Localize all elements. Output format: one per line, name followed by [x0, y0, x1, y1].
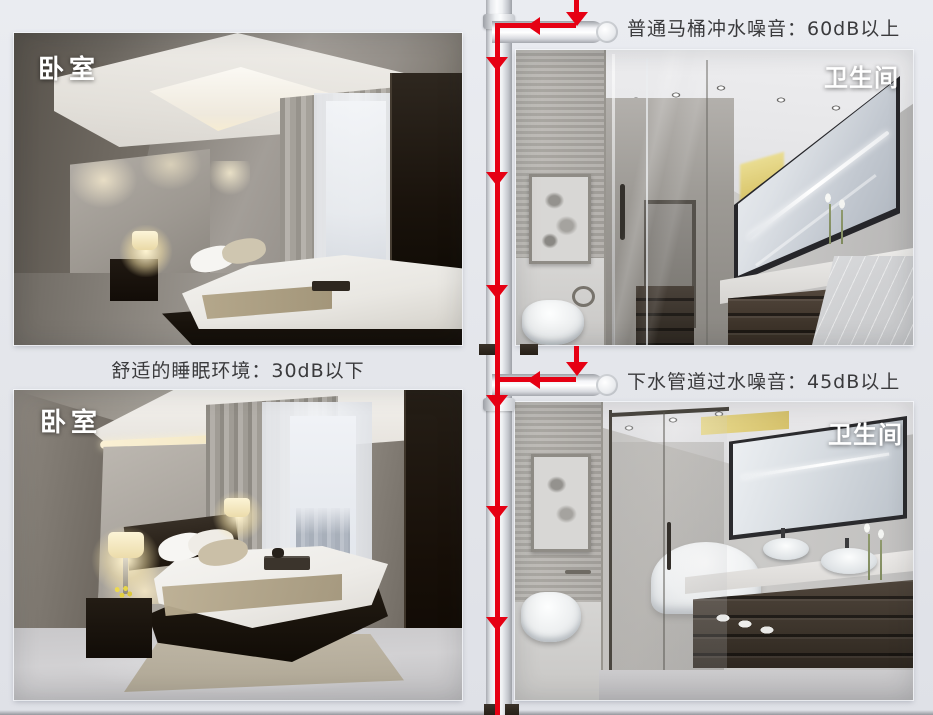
towel-bar: [565, 570, 591, 574]
bed-tray: [312, 281, 350, 291]
caption-sleep-environment: 舒适的睡眠环境：30dB以下: [14, 356, 462, 383]
toilet: [522, 300, 584, 345]
flow-arrow-down-icon: [486, 285, 508, 299]
faucet: [845, 538, 849, 548]
flow-arrow-down-icon: [486, 172, 508, 186]
bathroom-photo-top: 卫生间: [516, 50, 913, 345]
pipe-cap: [596, 374, 618, 396]
flow-line: [574, 346, 579, 363]
glass-reflection: [614, 50, 710, 345]
flow-arrow-down-icon: [566, 12, 588, 26]
bottom-edge-shadow: [0, 710, 933, 715]
flow-arrow-down-icon: [486, 506, 508, 520]
bathroom-photo-bottom: 卫生间: [515, 402, 913, 700]
bedroom-label: 卧室: [40, 402, 102, 439]
floor-slab: [479, 344, 496, 355]
wall-artwork: [531, 454, 591, 552]
pillow: [220, 235, 267, 266]
table-lamp: [108, 532, 144, 558]
calla-lily-flowers: [859, 522, 889, 582]
wall-lamp-glow: [210, 161, 250, 201]
flow-arrow-down-icon: [486, 395, 508, 409]
floor-slab: [505, 704, 519, 715]
noise-comparison-diagram: 卧室 卫生间: [0, 0, 933, 715]
table-lamp: [132, 231, 158, 250]
teapot: [272, 548, 284, 558]
flow-arrow-down-icon: [566, 362, 588, 376]
caption-drain-pipe-noise: 下水管道过水噪音：45dB以上: [627, 367, 900, 394]
caption-toilet-flush-noise: 普通马桶冲水噪音：60dB以上: [627, 14, 900, 41]
shower-glass-edge: [663, 412, 665, 700]
yellow-flowers: [110, 584, 134, 600]
towel-ring: [572, 286, 595, 307]
toilet: [521, 592, 581, 642]
wardrobe: [390, 73, 462, 285]
flow-arrow-left-icon: [527, 17, 540, 35]
flow-arrow-down-icon: [486, 617, 508, 631]
floor-slab: [520, 344, 538, 355]
flow-arrow-left-icon: [527, 371, 540, 389]
bathroom-label: 卫生间: [824, 58, 899, 93]
flow-line-main: [495, 23, 500, 715]
vessel-sink: [763, 538, 809, 560]
bedroom-photo-bottom: 卧室: [14, 390, 462, 700]
shower-door-handle: [667, 522, 671, 570]
floor: [599, 670, 913, 700]
shower-frame: [609, 410, 612, 700]
bathroom-label: 卫生间: [828, 415, 903, 450]
table-lamp: [224, 498, 250, 517]
bed-tray: [264, 556, 310, 570]
window: [326, 101, 386, 261]
flow-arrow-down-icon: [486, 57, 508, 71]
bedroom-photo-top: 卧室: [14, 33, 462, 345]
nightstand: [86, 598, 152, 658]
faucet: [781, 528, 785, 538]
calla-lily-flowers: [820, 192, 850, 244]
bedroom-label: 卧室: [38, 49, 100, 86]
pipe-cap: [596, 21, 618, 43]
wall-artwork: [529, 174, 591, 264]
